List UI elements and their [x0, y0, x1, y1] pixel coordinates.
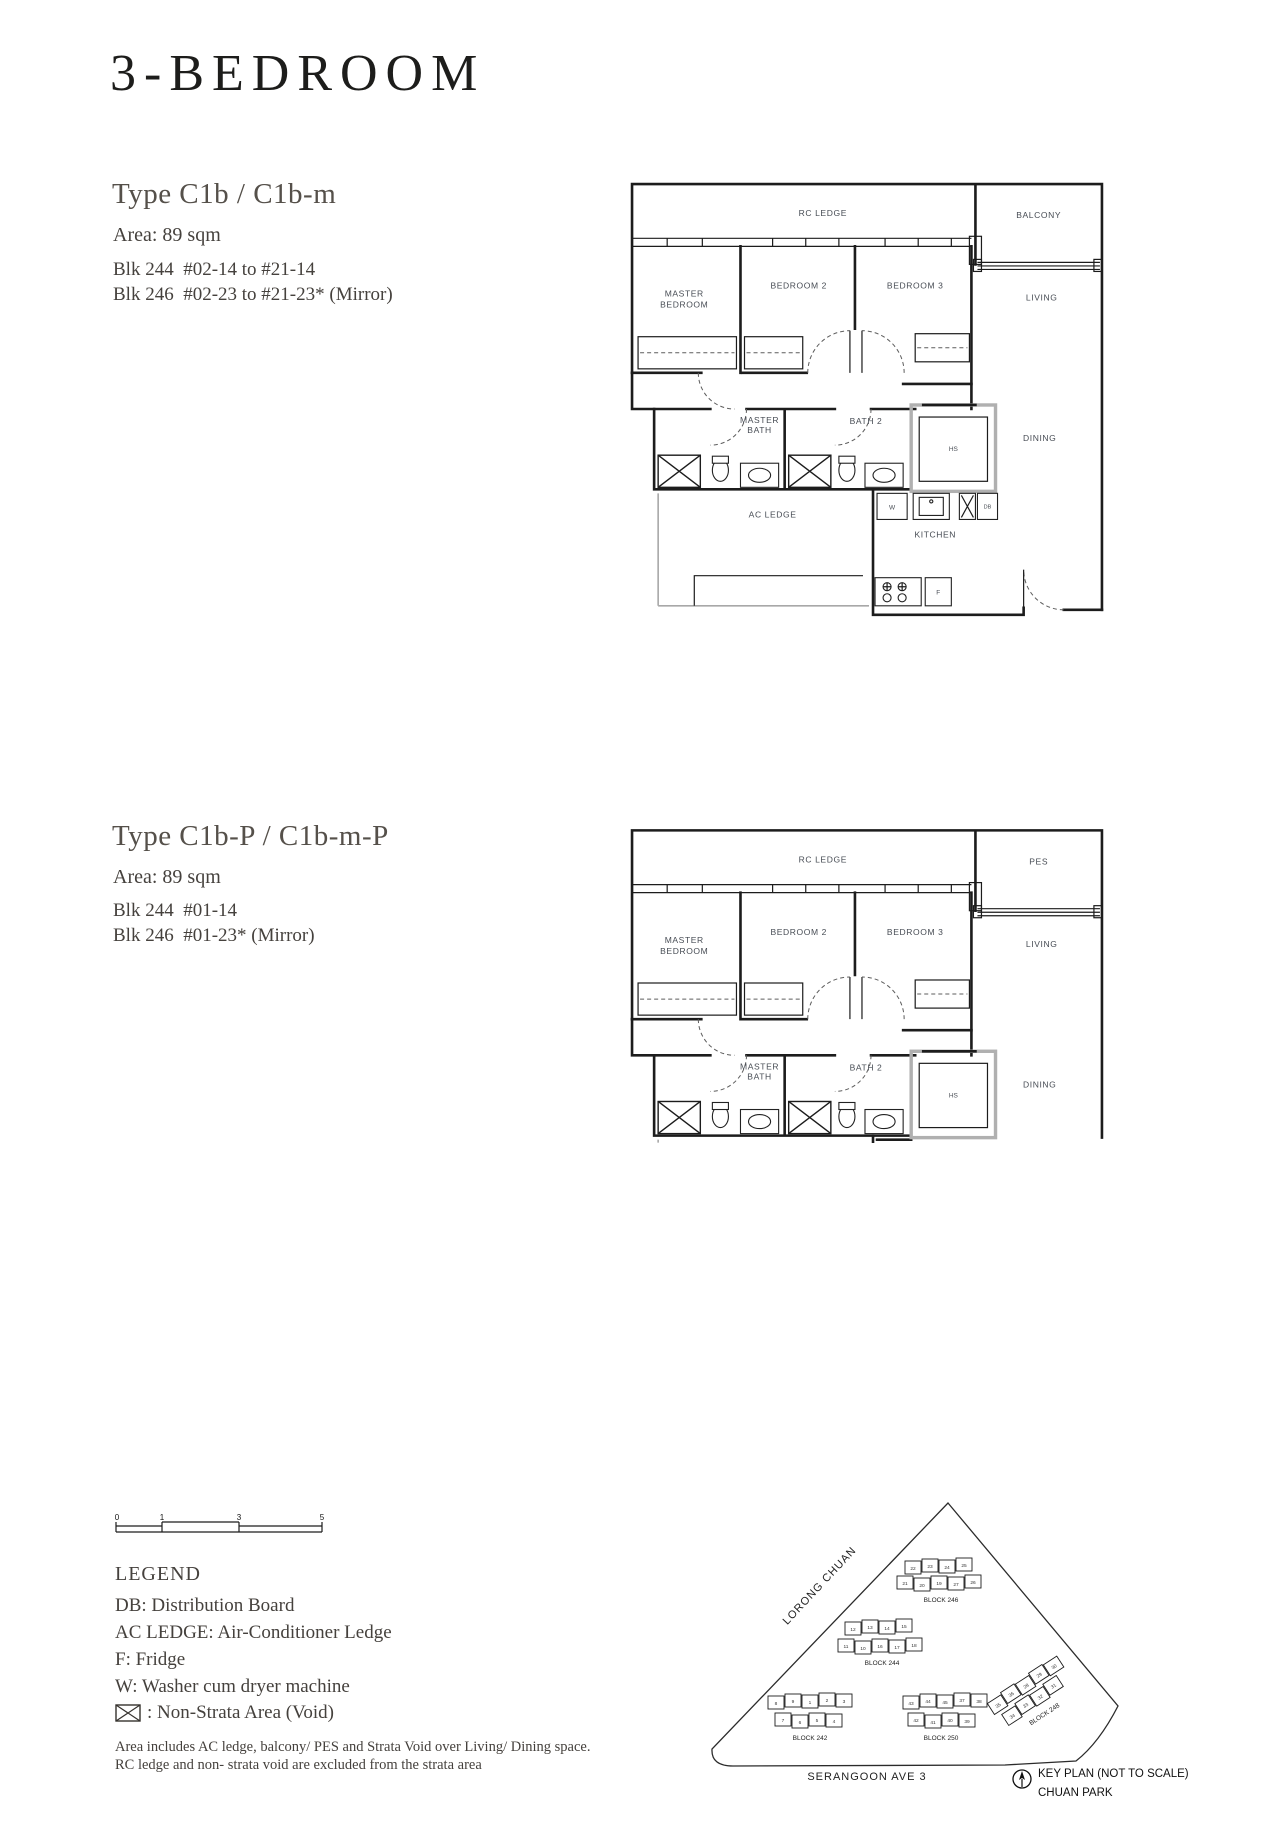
unit-number: 42 [913, 1718, 919, 1724]
unit-number: 41 [930, 1720, 936, 1726]
room-label-master-bath-2: BATH [747, 1071, 772, 1081]
room-label-dining: DINING [1023, 433, 1056, 443]
balcony-window [969, 236, 1102, 271]
block-242-cluster: 8 9 1 2 3 7 6 5 4 BLOCK 242 [768, 1693, 852, 1742]
unit-number: 5 [816, 1718, 819, 1724]
unit-number: 3 [843, 1699, 846, 1705]
unit-number: 45 [942, 1700, 948, 1706]
door-swings [698, 977, 904, 1091]
unit-number: 4 [833, 1719, 836, 1725]
unit-number: 39 [964, 1719, 970, 1725]
room-label-balcony: BALCONY [1016, 210, 1061, 220]
unit-number-highlighted: 23 [927, 1564, 933, 1570]
room-label-rc-ledge: RC LEDGE [799, 855, 847, 865]
unit-number: 22 [910, 1566, 916, 1572]
unit-number: 40 [947, 1718, 953, 1724]
scale-tick-0: 0 [115, 1513, 120, 1522]
unit-number: 8 [775, 1701, 778, 1707]
floorplan-1-svg: RC LEDGE BALCONY MASTER BEDROOM BEDROOM … [622, 176, 1114, 640]
block-242-label: BLOCK 242 [793, 1735, 828, 1742]
unit-number: 20 [919, 1583, 925, 1589]
room-label-master-bedroom-2: BEDROOM [660, 946, 708, 956]
room-label-kitchen: KITCHEN [914, 530, 956, 540]
unit-number: 43 [908, 1701, 914, 1707]
room-label-bedroom2: BEDROOM 2 [770, 927, 827, 937]
footnote-line1: Area includes AC ledge, balcony/ PES and… [115, 1738, 590, 1756]
footnote-line2: RC ledge and non- strata void are exclud… [115, 1756, 482, 1774]
block-246-cluster: 22 23 24 25 21 20 19 27 26 BLOCK 246 [897, 1558, 981, 1604]
road-label-lorong-chuan: LORONG CHUAN [781, 1545, 859, 1628]
legend-item-db: DB: Distribution Board [115, 1592, 294, 1619]
floorplan-type-c1b-p: RC LEDGE PES MASTER BEDROOM BEDROOM 2 BE… [622, 822, 1114, 1149]
unit-number: 13 [867, 1625, 873, 1631]
unit-number: 26 [970, 1580, 976, 1586]
unit-number: 2 [826, 1698, 829, 1704]
wardrobes [638, 980, 969, 1015]
unit-number: 25 [961, 1563, 967, 1569]
unit-number: 6 [799, 1720, 802, 1726]
unit-number: 12 [850, 1627, 856, 1633]
unit-number-highlighted: 14 [884, 1626, 890, 1632]
section2-area: Area: 89 sqm [113, 866, 221, 889]
legend-heading: LEGEND [115, 1563, 201, 1586]
appliance-label-washer: W [889, 504, 896, 511]
page-title: 3-BEDROOM [110, 44, 485, 103]
room-label-bedroom2: BEDROOM 2 [770, 281, 827, 291]
north-compass-icon [1013, 1770, 1031, 1788]
room-label-master-bath-1: MASTER [740, 415, 779, 425]
legend-item-fridge: F: Fridge [115, 1646, 185, 1673]
keyplan-caption-line1: KEY PLAN (NOT TO SCALE) [1038, 1768, 1189, 1780]
floorplan-2-svg: RC LEDGE PES MASTER BEDROOM BEDROOM 2 BE… [622, 822, 1114, 1144]
scale-tick-5: 5 [320, 1513, 325, 1522]
unit-number: 10 [860, 1646, 866, 1652]
section1-area: Area: 89 sqm [113, 224, 221, 247]
unit-number: 24 [944, 1565, 950, 1571]
walls [632, 184, 1102, 615]
section1-type-heading: Type C1b / C1b-m [112, 178, 336, 211]
window-band [632, 885, 971, 893]
scale-bar: 0 1 3 5 [114, 1512, 334, 1543]
section2-blk-line2: Blk 246 #01-23* (Mirror) [113, 924, 315, 948]
block-246-label: BLOCK 246 [924, 1597, 959, 1604]
legend-item-void: : Non-Strata Area (Void) [115, 1699, 334, 1726]
room-label-rc-ledge: RC LEDGE [799, 208, 847, 218]
unit-number: 21 [902, 1581, 908, 1587]
block-250-label: BLOCK 250 [924, 1735, 959, 1742]
key-plan-svg: LORONG CHUAN SERANGOON AVE 3 22 23 24 25… [695, 1475, 1235, 1825]
room-label-dining: DINING [1023, 1079, 1056, 1089]
block-250-cluster: 43 44 45 37 38 42 41 40 39 BLOCK 250 [903, 1693, 987, 1742]
room-label-bedroom3: BEDROOM 3 [887, 281, 944, 291]
appliance-label-fridge: F [936, 590, 940, 597]
room-label-master-bedroom-1: MASTER [665, 289, 704, 299]
block-248-cluster: 35 36 28 29 30 34 33 32 31 BLOCK 248 [986, 1655, 1082, 1740]
room-label-hs: HS [949, 1092, 959, 1099]
room-label-living: LIVING [1026, 939, 1058, 949]
road-label-serangoon-ave-3: SERANGOON AVE 3 [807, 1771, 926, 1783]
room-label-master-bedroom-1: MASTER [665, 935, 704, 945]
section1-blk-line1: Blk 244 #02-14 to #21-14 [113, 258, 315, 282]
scale-tick-3: 3 [237, 1513, 242, 1522]
room-label-ac-ledge: AC LEDGE [749, 509, 797, 519]
unit-number: 1 [809, 1700, 812, 1706]
walls [632, 830, 1102, 1141]
block-244-label: BLOCK 244 [865, 1660, 900, 1667]
window-band [632, 238, 971, 246]
appliance-label-db: DB [984, 504, 992, 510]
room-label-pes: PES [1029, 857, 1048, 867]
legend-item-ac-ledge: AC LEDGE: Air-Conditioner Ledge [115, 1619, 392, 1646]
room-label-master-bath-1: MASTER [740, 1061, 779, 1071]
section1-blk-line2: Blk 246 #02-23 to #21-23* (Mirror) [113, 283, 393, 307]
room-label-bedroom3: BEDROOM 3 [887, 927, 944, 937]
room-label-bath2: BATH 2 [850, 1062, 883, 1072]
room-label-bath2: BATH 2 [850, 416, 883, 426]
non-strata-void-icon [115, 1704, 141, 1722]
key-plan: LORONG CHUAN SERANGOON AVE 3 22 23 24 25… [695, 1475, 1235, 1830]
section2-blk-line1: Blk 244 #01-14 [113, 899, 237, 923]
floorplan-type-c1b: RC LEDGE BALCONY MASTER BEDROOM BEDROOM … [622, 176, 1114, 645]
unit-number: 16 [877, 1644, 883, 1650]
unit-number: 15 [901, 1624, 907, 1630]
unit-number: 38 [976, 1699, 982, 1705]
unit-number: 7 [782, 1718, 785, 1724]
unit-number: 18 [911, 1643, 917, 1649]
room-label-living: LIVING [1026, 293, 1058, 303]
unit-number: 17 [894, 1645, 900, 1651]
scale-bar-svg: 0 1 3 5 [114, 1512, 334, 1538]
room-label-hs: HS [949, 446, 959, 453]
room-label-master-bath-2: BATH [747, 425, 772, 435]
scale-tick-1: 1 [160, 1513, 165, 1522]
wardrobes [638, 334, 969, 369]
unit-number: 9 [792, 1699, 795, 1705]
room-label-master-bedroom-2: BEDROOM [660, 300, 708, 310]
legend-item-void-label: : Non-Strata Area (Void) [147, 1699, 334, 1726]
unit-number: 11 [844, 1644, 849, 1650]
floorplan-brochure-page: { "page": { "title": "3-BEDROOM", "foote… [0, 0, 1263, 1842]
section2-type-heading: Type C1b-P / C1b-m-P [112, 820, 389, 853]
pes-window [969, 883, 1102, 918]
block-244-cluster: 12 13 14 15 11 10 16 17 18 BLOCK 244 [838, 1619, 922, 1667]
unit-number: 44 [925, 1699, 931, 1705]
unit-number: 37 [959, 1698, 965, 1704]
legend-item-washer: W: Washer cum dryer machine [115, 1673, 350, 1700]
unit-number: 19 [936, 1581, 942, 1587]
site-boundary [712, 1503, 1118, 1766]
unit-number: 27 [953, 1582, 959, 1588]
keyplan-caption-line2: CHUAN PARK [1038, 1787, 1113, 1799]
